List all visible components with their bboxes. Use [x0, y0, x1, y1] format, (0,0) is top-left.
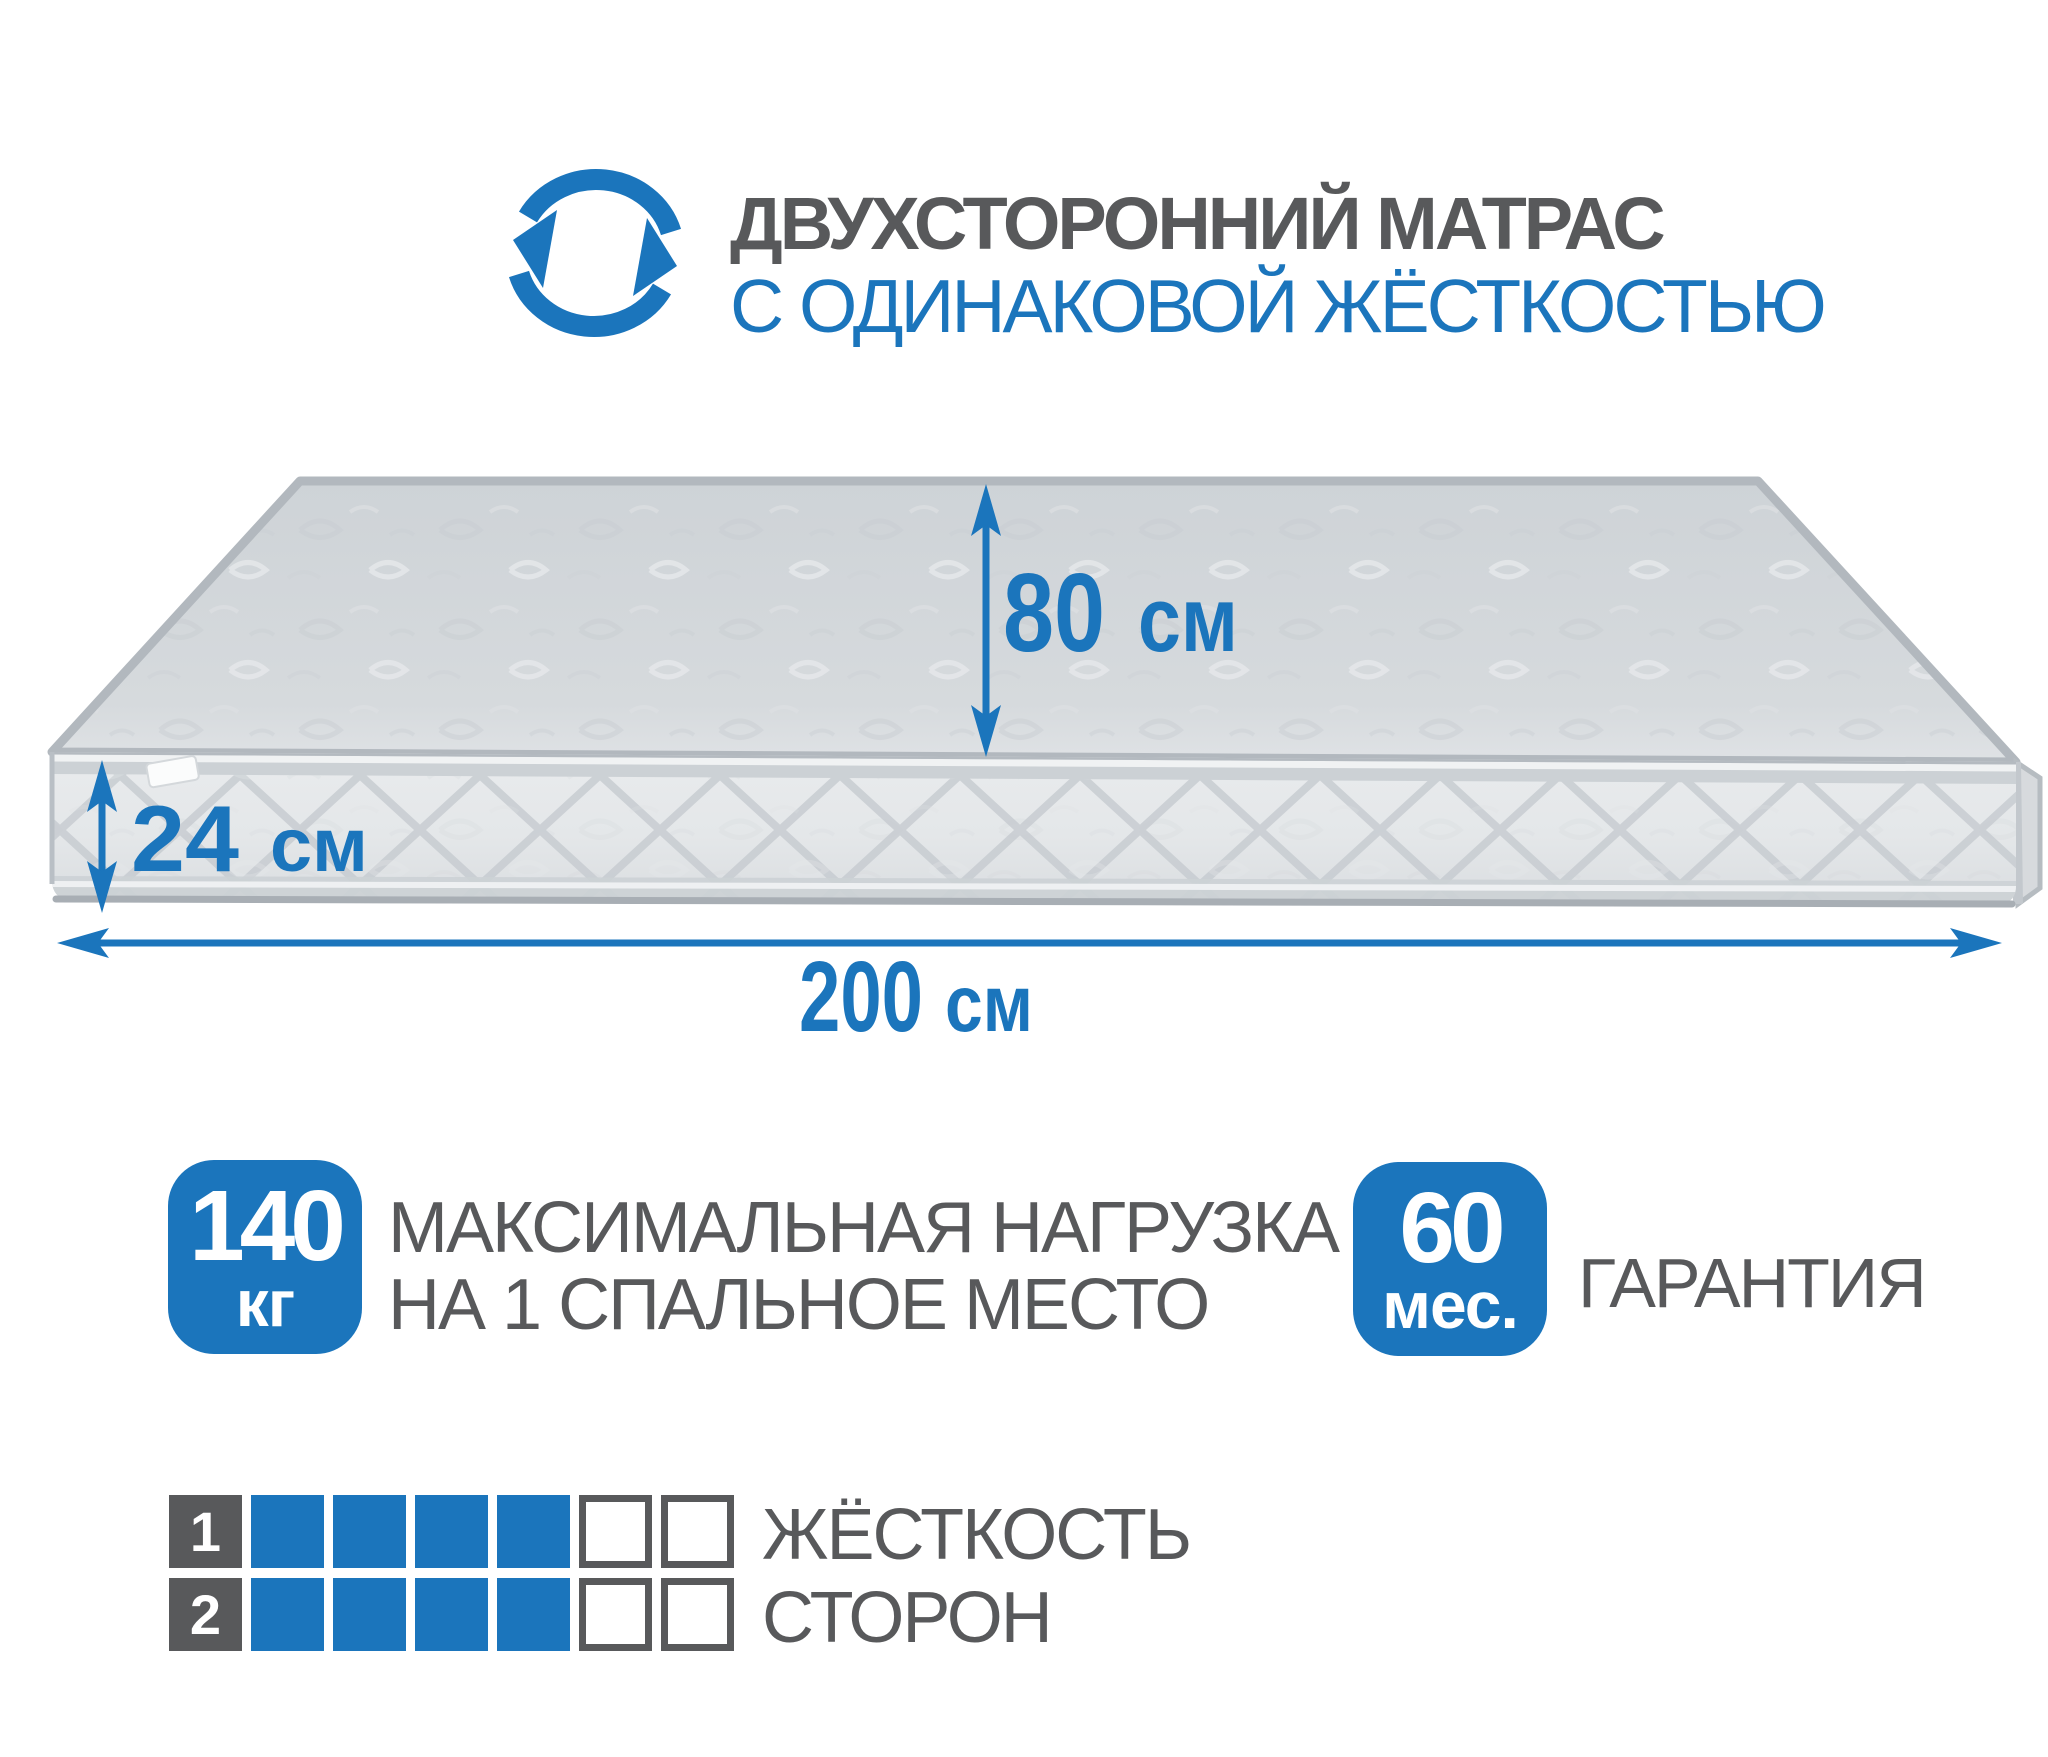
hardness-cell-filled [497, 1495, 570, 1568]
hardness-cell-empty [661, 1495, 734, 1568]
rotation-arrows-icon [505, 168, 685, 340]
hardness-scale: 1 2 [169, 1495, 734, 1651]
hardness-caption-line2: СТОРОН [762, 1577, 1190, 1660]
hardness-row: 2 [169, 1578, 734, 1651]
warranty-unit: мес. [1382, 1274, 1518, 1336]
dimension-height-unit: см [270, 803, 368, 888]
max-load-badge: 140 кг [168, 1160, 362, 1354]
hardness-cell-filled [415, 1495, 488, 1568]
hardness-row-label: 2 [169, 1578, 242, 1651]
max-load-description-line2: НА 1 СПАЛЬНОЕ МЕСТО [388, 1267, 1338, 1344]
max-load-description: МАКСИМАЛЬНАЯ НАГРУЗКА НА 1 СПАЛЬНОЕ МЕСТ… [388, 1190, 1338, 1344]
hardness-cell-filled [251, 1495, 324, 1568]
hardness-cell-empty [661, 1578, 734, 1651]
dimension-length-unit: см [945, 959, 1033, 1048]
dimension-length-value: 200 [799, 941, 923, 1053]
dimension-arrow-length [57, 928, 2002, 958]
warranty-badge: 60 мес. [1353, 1162, 1547, 1356]
hardness-cell-filled [333, 1495, 406, 1568]
hardness-cell-filled [251, 1578, 324, 1651]
dimension-width-unit: см [1138, 569, 1238, 671]
warranty-value: 60 [1399, 1182, 1500, 1274]
hardness-cell-empty [579, 1578, 652, 1651]
hardness-cell-filled [415, 1578, 488, 1651]
page-subtitle: С ОДИНАКОВОЙ ЖЁСТКОСТЬЮ [730, 263, 1824, 349]
max-load-value: 140 [189, 1180, 341, 1272]
hardness-cell-filled [333, 1578, 406, 1651]
hardness-cell-empty [579, 1495, 652, 1568]
mattress-infographic: { "colors": { "accent": "#1b75bc", "text… [0, 0, 2048, 1757]
hardness-row: 1 [169, 1495, 734, 1568]
dimension-width-value: 80 [1003, 551, 1105, 675]
mattress-right-face [2016, 762, 2040, 904]
max-load-unit: кг [236, 1272, 295, 1334]
max-load-description-line1: МАКСИМАЛЬНАЯ НАГРУЗКА [388, 1190, 1338, 1267]
hardness-caption: ЖЁСТКОСТЬ СТОРОН [762, 1494, 1190, 1660]
hardness-row-label: 1 [169, 1495, 242, 1568]
page-title: ДВУХСТОРОННИЙ МАТРАС [730, 181, 1663, 266]
hardness-caption-line1: ЖЁСТКОСТЬ [762, 1494, 1190, 1577]
hardness-cell-filled [497, 1578, 570, 1651]
dimension-height-value: 24 [131, 786, 239, 891]
warranty-label: ГАРАНТИЯ [1578, 1245, 1925, 1322]
